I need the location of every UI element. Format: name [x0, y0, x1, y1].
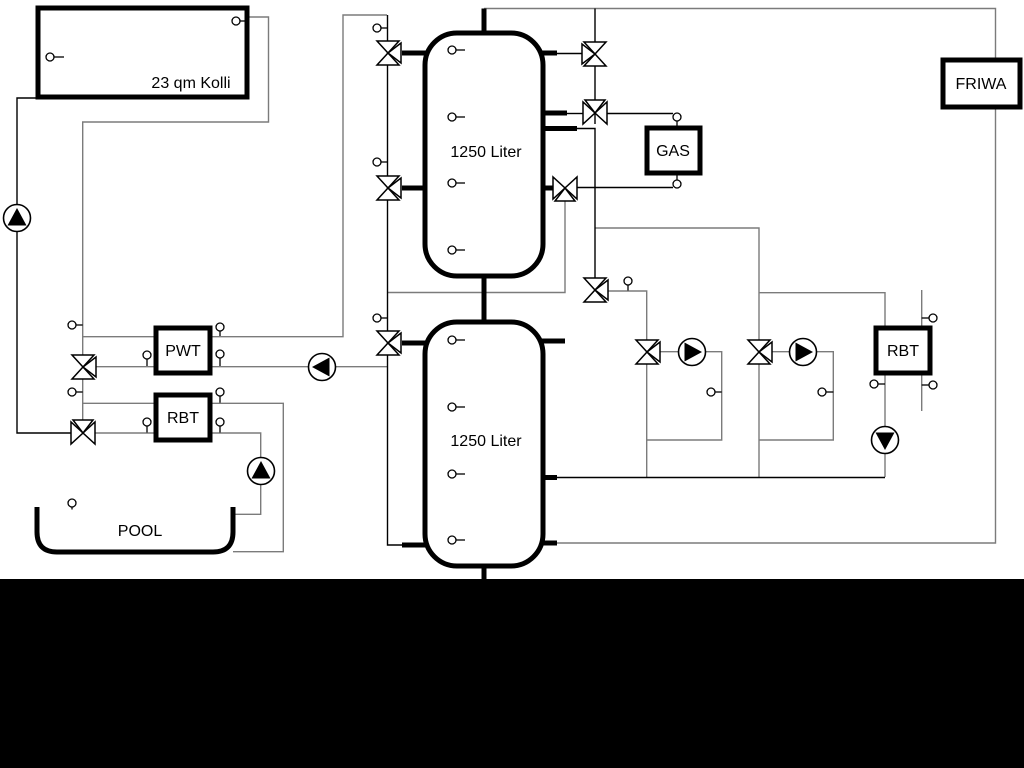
bottom-bar	[0, 579, 1024, 768]
hydraulic-diagram: 23 qm Kolli 1250 Liter 1250 Liter GAS FR…	[0, 0, 1024, 768]
rbt-right-pump-icon	[872, 427, 899, 454]
heating-circuit-2-pump-icon	[790, 339, 817, 366]
pool-label: POOL	[118, 523, 163, 540]
friwa-label: FRIWA	[956, 76, 1007, 93]
solar-pump-icon	[4, 205, 31, 232]
buffer-tank-bottom-label: 1250 Liter	[450, 433, 522, 450]
solar-collector-label: 23 qm Kolli	[151, 75, 230, 92]
pool-pump-icon	[248, 458, 275, 485]
gas-boiler-label: GAS	[656, 143, 690, 160]
rbt-left-label: RBT	[167, 410, 199, 427]
pwt-label: PWT	[165, 343, 201, 360]
rbt-right-label: RBT	[887, 343, 919, 360]
heating-circuit-1-pump-icon	[679, 339, 706, 366]
buffer-tank-top-label: 1250 Liter	[450, 144, 522, 161]
schematic-canvas: 23 qm Kolli 1250 Liter 1250 Liter GAS FR…	[0, 0, 1024, 768]
pwt-pump-icon	[309, 354, 336, 381]
